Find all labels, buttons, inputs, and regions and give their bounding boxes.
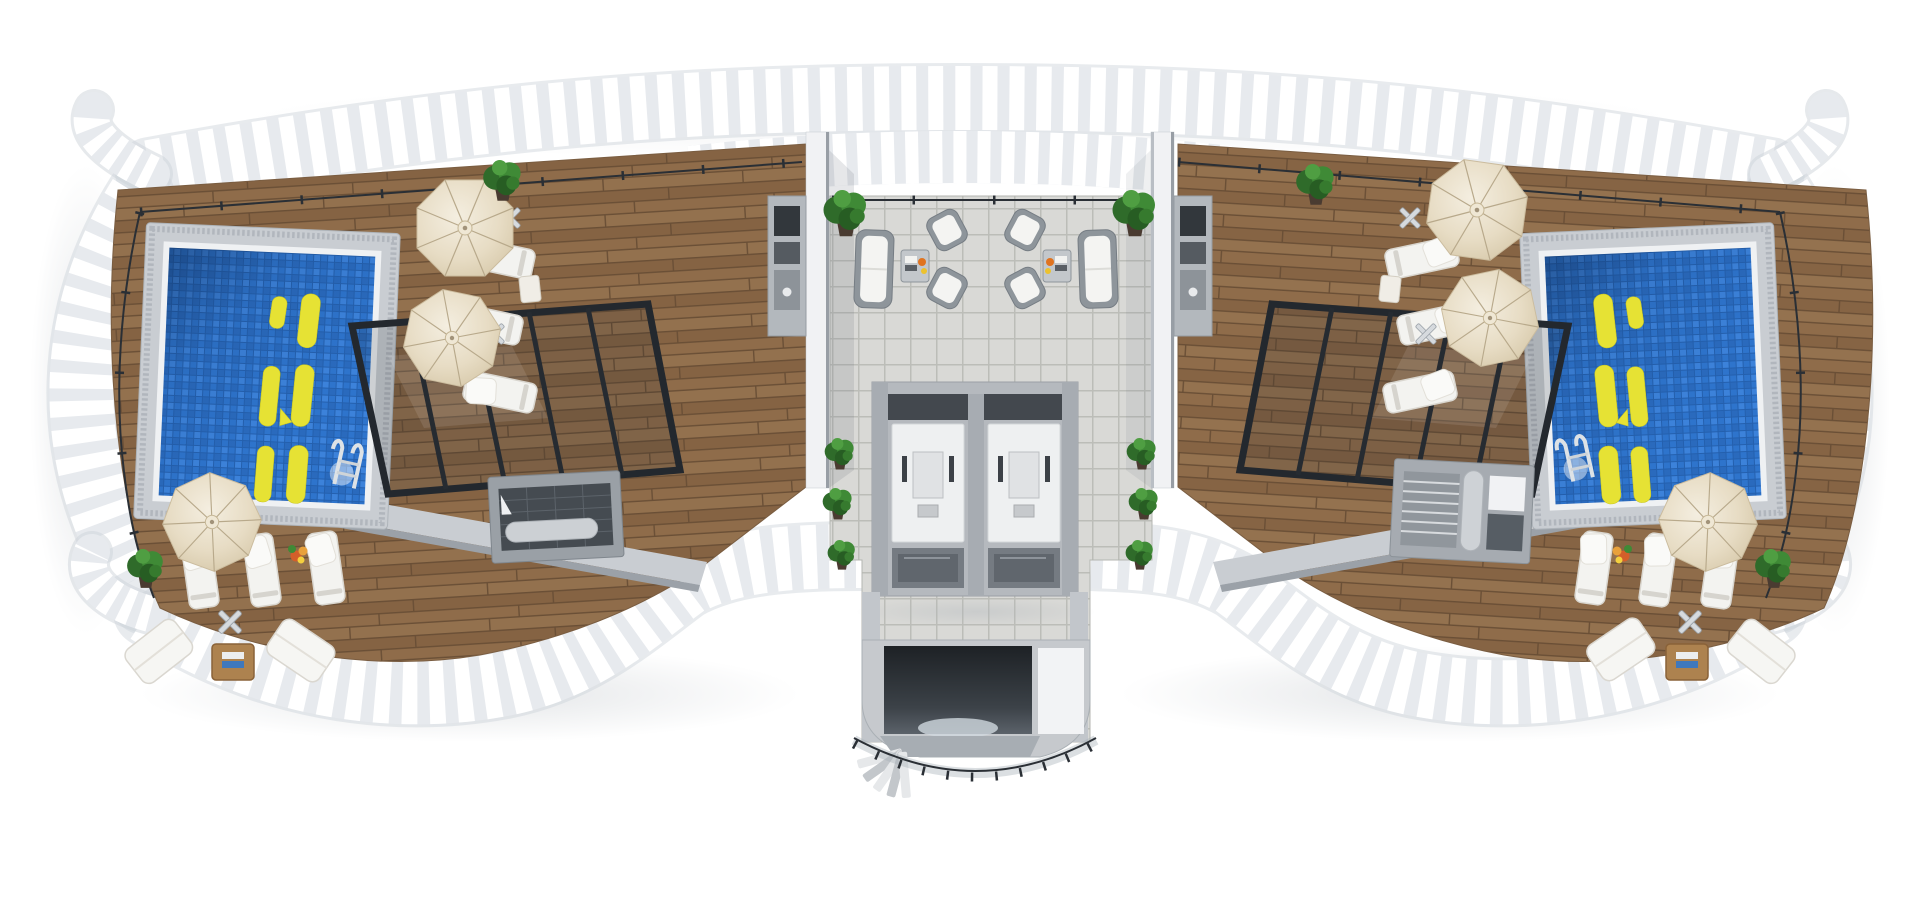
- stairwell-doorway: [1038, 648, 1084, 734]
- elevator-door-right: [988, 548, 1060, 588]
- coffee-table: [901, 250, 929, 282]
- elevator-shadow: [856, 597, 1096, 627]
- court-wall-right: [1151, 132, 1174, 488]
- coffee-table: [212, 644, 254, 680]
- elevator-block: [872, 382, 1078, 596]
- court-wall-left: [806, 132, 829, 488]
- elevator-door-left: [892, 548, 964, 588]
- coffee-table: [1043, 250, 1071, 282]
- sofa: [1078, 229, 1119, 308]
- elevator-car-right: [988, 424, 1060, 542]
- elevator-car-left: [892, 424, 964, 542]
- coffee-table: [1666, 644, 1708, 680]
- side-table-right: [1379, 275, 1402, 303]
- sofa: [854, 229, 895, 308]
- kitchenette-right: [1174, 196, 1212, 336]
- kitchenette-left: [768, 196, 806, 336]
- rooftop-terrace-render: [0, 0, 1920, 921]
- side-table-left: [519, 275, 542, 303]
- bar-counter-left: [488, 471, 624, 564]
- stair-room-right: [1390, 459, 1535, 564]
